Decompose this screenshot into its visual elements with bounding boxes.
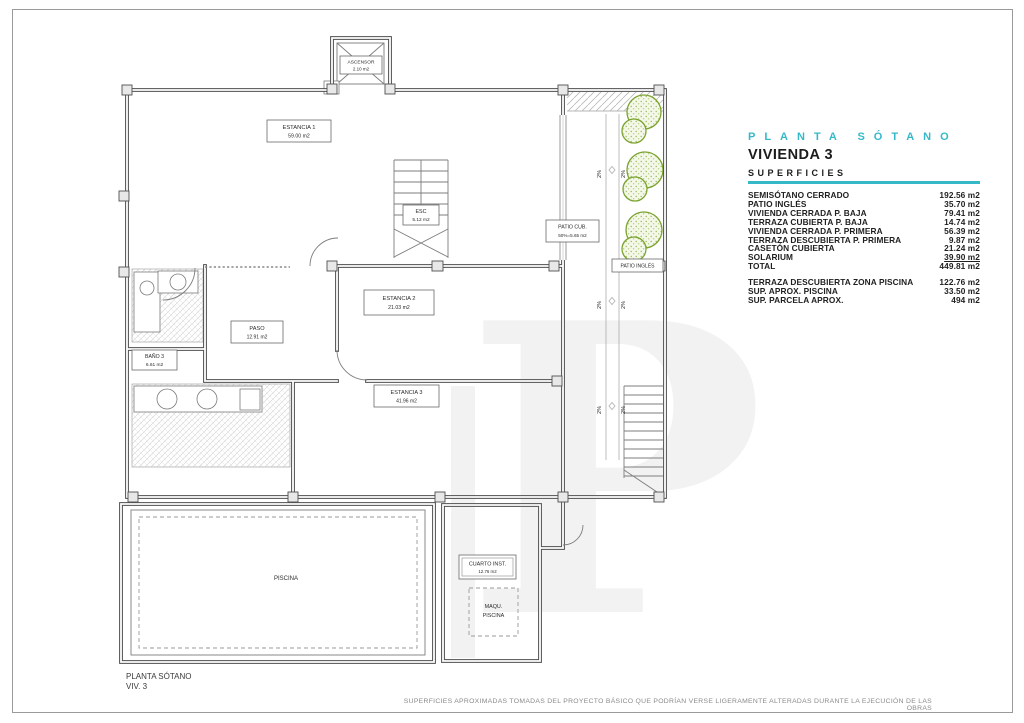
room-label-estancia2: ESTANCIA 2 21.03 m2: [364, 290, 434, 315]
pool: [131, 510, 425, 655]
room-area: 12.76 m2: [478, 569, 497, 574]
surface-row: SUP. PARCELA APROX. 494 m2: [748, 296, 980, 305]
room-label-estancia1: ESTANCIA 1 59.00 m2: [267, 120, 331, 142]
surface-label: TOTAL: [748, 262, 775, 271]
slope-label: 2%: [621, 406, 627, 414]
room-name: MAQU.: [485, 604, 503, 610]
room-label-cuarto-inst: CUARTO INST. 12.76 m2: [459, 555, 516, 579]
slope-label: 2%: [621, 301, 627, 309]
surface-row-total: TOTAL 449.81 m2: [748, 262, 980, 271]
room-name: BAÑO 3: [145, 353, 164, 360]
room-area: 5.12 m2: [412, 217, 430, 223]
room-area: 50%=5.65 m2: [558, 233, 587, 238]
room-label-bano3: BAÑO 3 6.61 m2: [132, 350, 177, 370]
watermark-letter: P: [465, 237, 766, 707]
surfaces-heading: SUPERFICIES: [748, 168, 980, 178]
room-area: 59.00 m2: [288, 134, 310, 140]
plan-title: PLANTA SÓTANO: [748, 131, 980, 143]
slope-label: 2%: [597, 406, 603, 414]
room-name: ASCENSOR: [348, 60, 375, 66]
floor-plan-canvas: P: [0, 0, 1024, 723]
room-area: 6.61 m2: [146, 362, 164, 368]
surface-label: SUP. PARCELA APROX.: [748, 296, 844, 305]
surface-value: 449.81 m2: [939, 262, 980, 271]
room-name: PATIO INGLÉS: [621, 263, 656, 270]
room-label-patio-cub: PATIO CUB. 50%=5.65 m2: [546, 220, 599, 242]
room-name: PATIO CUB.: [558, 225, 587, 231]
slope-label: 2%: [597, 301, 603, 309]
room-label-piscina: PISCINA: [274, 576, 298, 582]
room-area: 41.96 m2: [396, 399, 417, 405]
room-name: PISCINA: [483, 613, 505, 619]
laundry-area: [132, 384, 290, 467]
accent-rule: [748, 181, 980, 184]
room-area: 2.10 m2: [353, 67, 370, 72]
footer-plan-id: PLANTA SÓTANO VIV. 3: [126, 672, 192, 692]
dwelling-title: VIVIENDA 3: [748, 147, 980, 163]
room-name: ESTANCIA 3: [391, 390, 423, 396]
room-label-patio-ingles: PATIO INGLÉS: [612, 259, 663, 272]
surface-value: 494 m2: [951, 296, 980, 305]
footer-plan-name: PLANTA SÓTANO: [126, 672, 192, 682]
title-block: PLANTA SÓTANO VIVIENDA 3 SUPERFICIES SEM…: [748, 131, 980, 305]
room-label-estancia3: ESTANCIA 3 41.96 m2: [374, 385, 439, 407]
room-name: ESTANCIA 2: [382, 296, 415, 302]
room-name: CUARTO INST.: [469, 562, 506, 568]
room-area: 12.91 m2: [247, 335, 268, 341]
room-label-ascensor: ASCENSOR 2.10 m2: [340, 56, 382, 74]
room-name: ESTANCIA 1: [282, 125, 315, 131]
footer-dwelling-ref: VIV. 3: [126, 682, 192, 692]
footer-disclaimer: SUPERFICIES APROXIMADAS TOMADAS DEL PROY…: [380, 698, 932, 712]
slope-label: 2%: [621, 170, 627, 178]
room-area: 21.03 m2: [388, 305, 410, 311]
room-name: PASO: [249, 326, 265, 332]
watermark: P: [451, 237, 765, 707]
slope-label: 2%: [597, 170, 603, 178]
room-label-esc: ESC 5.12 m2: [403, 205, 439, 225]
room-label-paso: PASO 12.91 m2: [231, 321, 283, 343]
drawing-sheet: P: [0, 0, 1024, 723]
room-name: ESC: [415, 209, 426, 215]
tree-icon: [623, 152, 663, 201]
